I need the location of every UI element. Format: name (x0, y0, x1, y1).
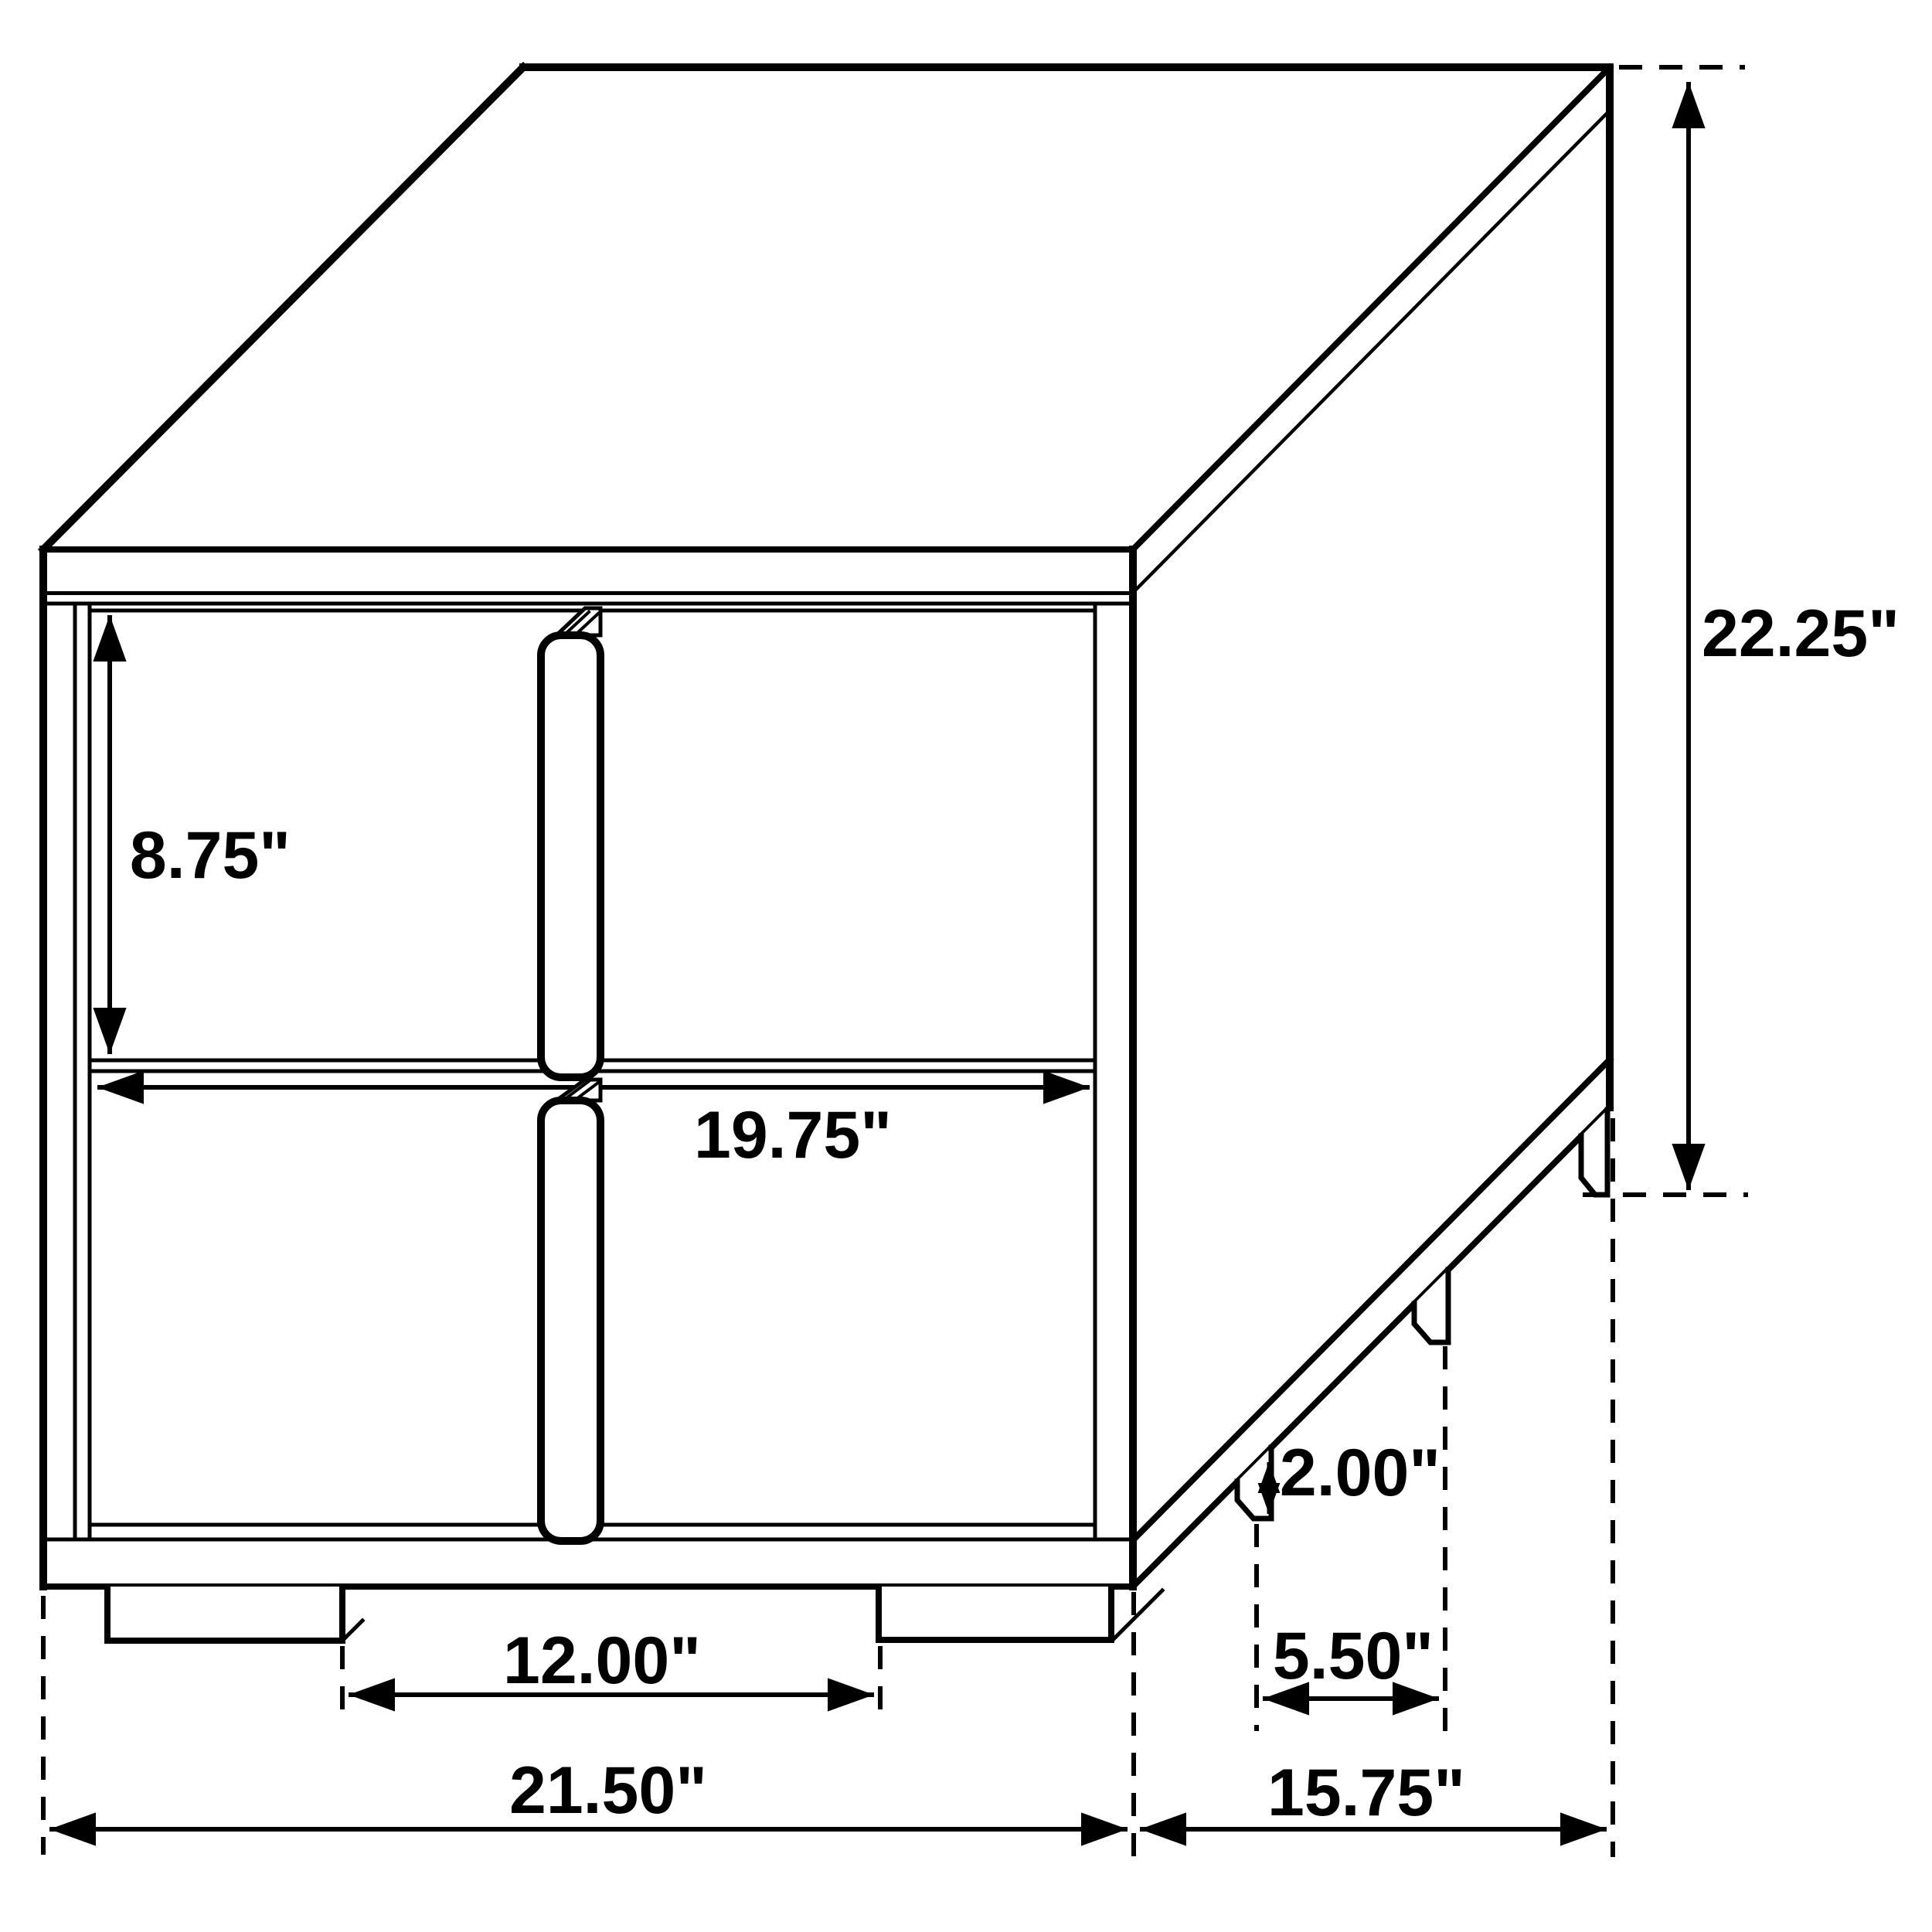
foot-height-label: 2.00" (1280, 1436, 1440, 1510)
front-right-foot (879, 1587, 1111, 1640)
bottom-drawer-pull (541, 1100, 600, 1541)
drawer-height-label: 8.75" (130, 818, 291, 893)
front-foot-spacing-label: 12.00" (503, 1624, 701, 1698)
drawer-width-label: 19.75" (694, 1098, 892, 1172)
top-drawer-pull (541, 635, 600, 1077)
overall-height-label: 22.25" (1702, 597, 1900, 671)
dimension-diagram: 8.75" 19.75" 22.25" 2.00" 12.00" 5.50" 2… (0, 0, 1932, 1932)
front-left-foot (107, 1587, 342, 1641)
drawer-pulls (541, 608, 600, 1541)
overall-depth-label: 15.75" (1267, 1756, 1465, 1830)
top-front-edge (43, 549, 1133, 595)
side-foot-spacing-label: 5.50" (1273, 1619, 1434, 1693)
drawing-canvas: 8.75" 19.75" 22.25" 2.00" 12.00" 5.50" 2… (0, 0, 1932, 1932)
overall-width-label: 21.50" (509, 1753, 707, 1828)
